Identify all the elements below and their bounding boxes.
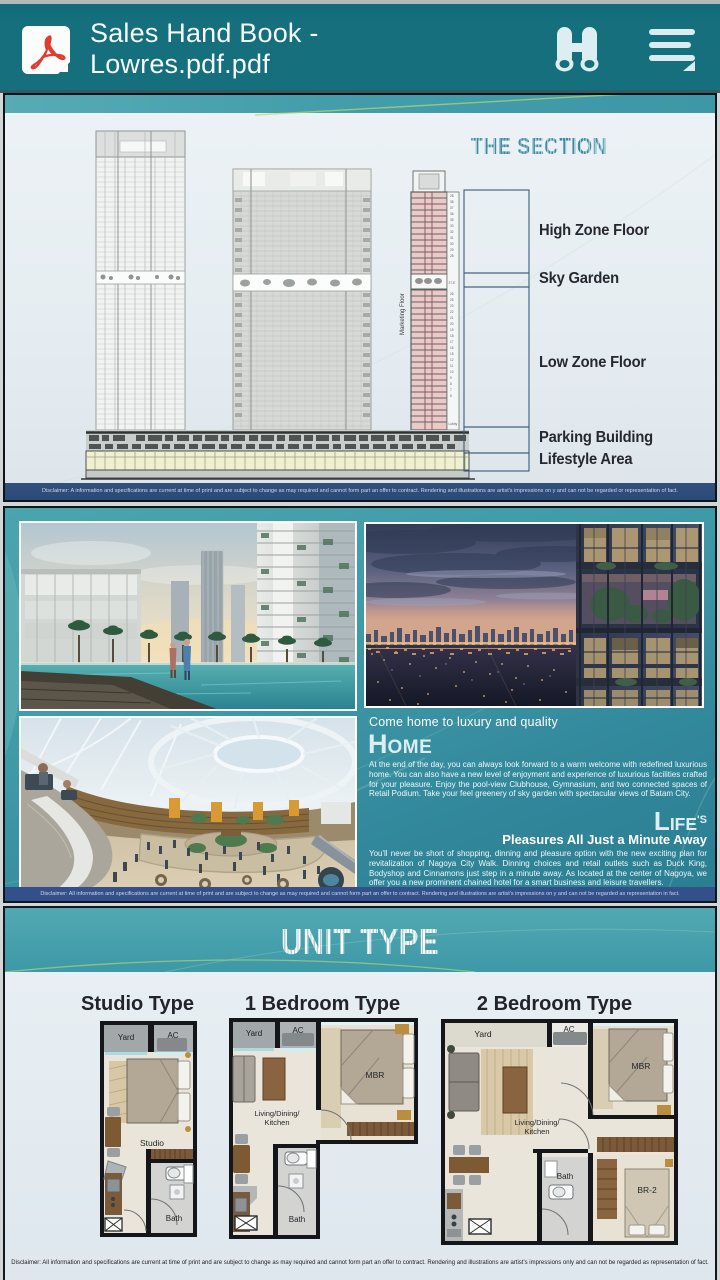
svg-text:33: 33 — [450, 224, 454, 228]
svg-text:Living/Dining/: Living/Dining/ — [514, 1118, 560, 1127]
svg-text:8: 8 — [450, 382, 452, 386]
svg-text:27-E: 27-E — [449, 281, 456, 285]
svg-text:30: 30 — [450, 242, 454, 246]
svg-text:28: 28 — [450, 254, 454, 258]
svg-text:21: 21 — [450, 316, 454, 320]
svg-text:Kitchen: Kitchen — [524, 1127, 549, 1136]
svg-text:Yard: Yard — [246, 1029, 262, 1038]
svg-text:23: 23 — [450, 304, 454, 308]
svg-text:16: 16 — [450, 346, 454, 350]
svg-text:12: 12 — [450, 358, 454, 362]
svg-text:Yard: Yard — [474, 1029, 492, 1039]
svg-text:31: 31 — [450, 236, 454, 240]
svg-text:Studio: Studio — [140, 1138, 164, 1148]
svg-text:7: 7 — [450, 388, 452, 392]
svg-text:35: 35 — [450, 218, 454, 222]
svg-text:MBR: MBR — [632, 1061, 651, 1071]
svg-text:29: 29 — [450, 248, 454, 252]
svg-text:22: 22 — [450, 310, 454, 314]
svg-text:38: 38 — [450, 200, 454, 204]
svg-text:Yard: Yard — [118, 1033, 134, 1042]
svg-text:10: 10 — [450, 370, 454, 374]
svg-text:Bath: Bath — [166, 1214, 182, 1223]
svg-text:9: 9 — [450, 376, 452, 380]
svg-text:19: 19 — [450, 328, 454, 332]
svg-text:18: 18 — [450, 334, 454, 338]
svg-text:Bath: Bath — [557, 1172, 573, 1181]
svg-text:MBR: MBR — [366, 1070, 385, 1080]
svg-text:36: 36 — [450, 212, 454, 216]
svg-text:32: 32 — [450, 230, 454, 234]
svg-text:15: 15 — [450, 352, 454, 356]
svg-text:Marketing Floor: Marketing Floor — [400, 293, 406, 335]
svg-text:11: 11 — [450, 364, 454, 368]
svg-text:6: 6 — [450, 394, 452, 398]
svg-text:BR-2: BR-2 — [637, 1185, 657, 1195]
svg-text:28: 28 — [450, 194, 454, 198]
svg-text:Living/Dining/: Living/Dining/ — [254, 1109, 300, 1118]
svg-text:Lobby: Lobby — [449, 422, 458, 426]
svg-text:Bath: Bath — [289, 1215, 305, 1224]
svg-text:17: 17 — [450, 340, 454, 344]
svg-text:25: 25 — [450, 298, 454, 302]
svg-text:37: 37 — [450, 206, 454, 210]
svg-text:Kitchen: Kitchen — [264, 1118, 289, 1127]
svg-text:26: 26 — [450, 292, 454, 296]
svg-text:20: 20 — [450, 322, 454, 326]
